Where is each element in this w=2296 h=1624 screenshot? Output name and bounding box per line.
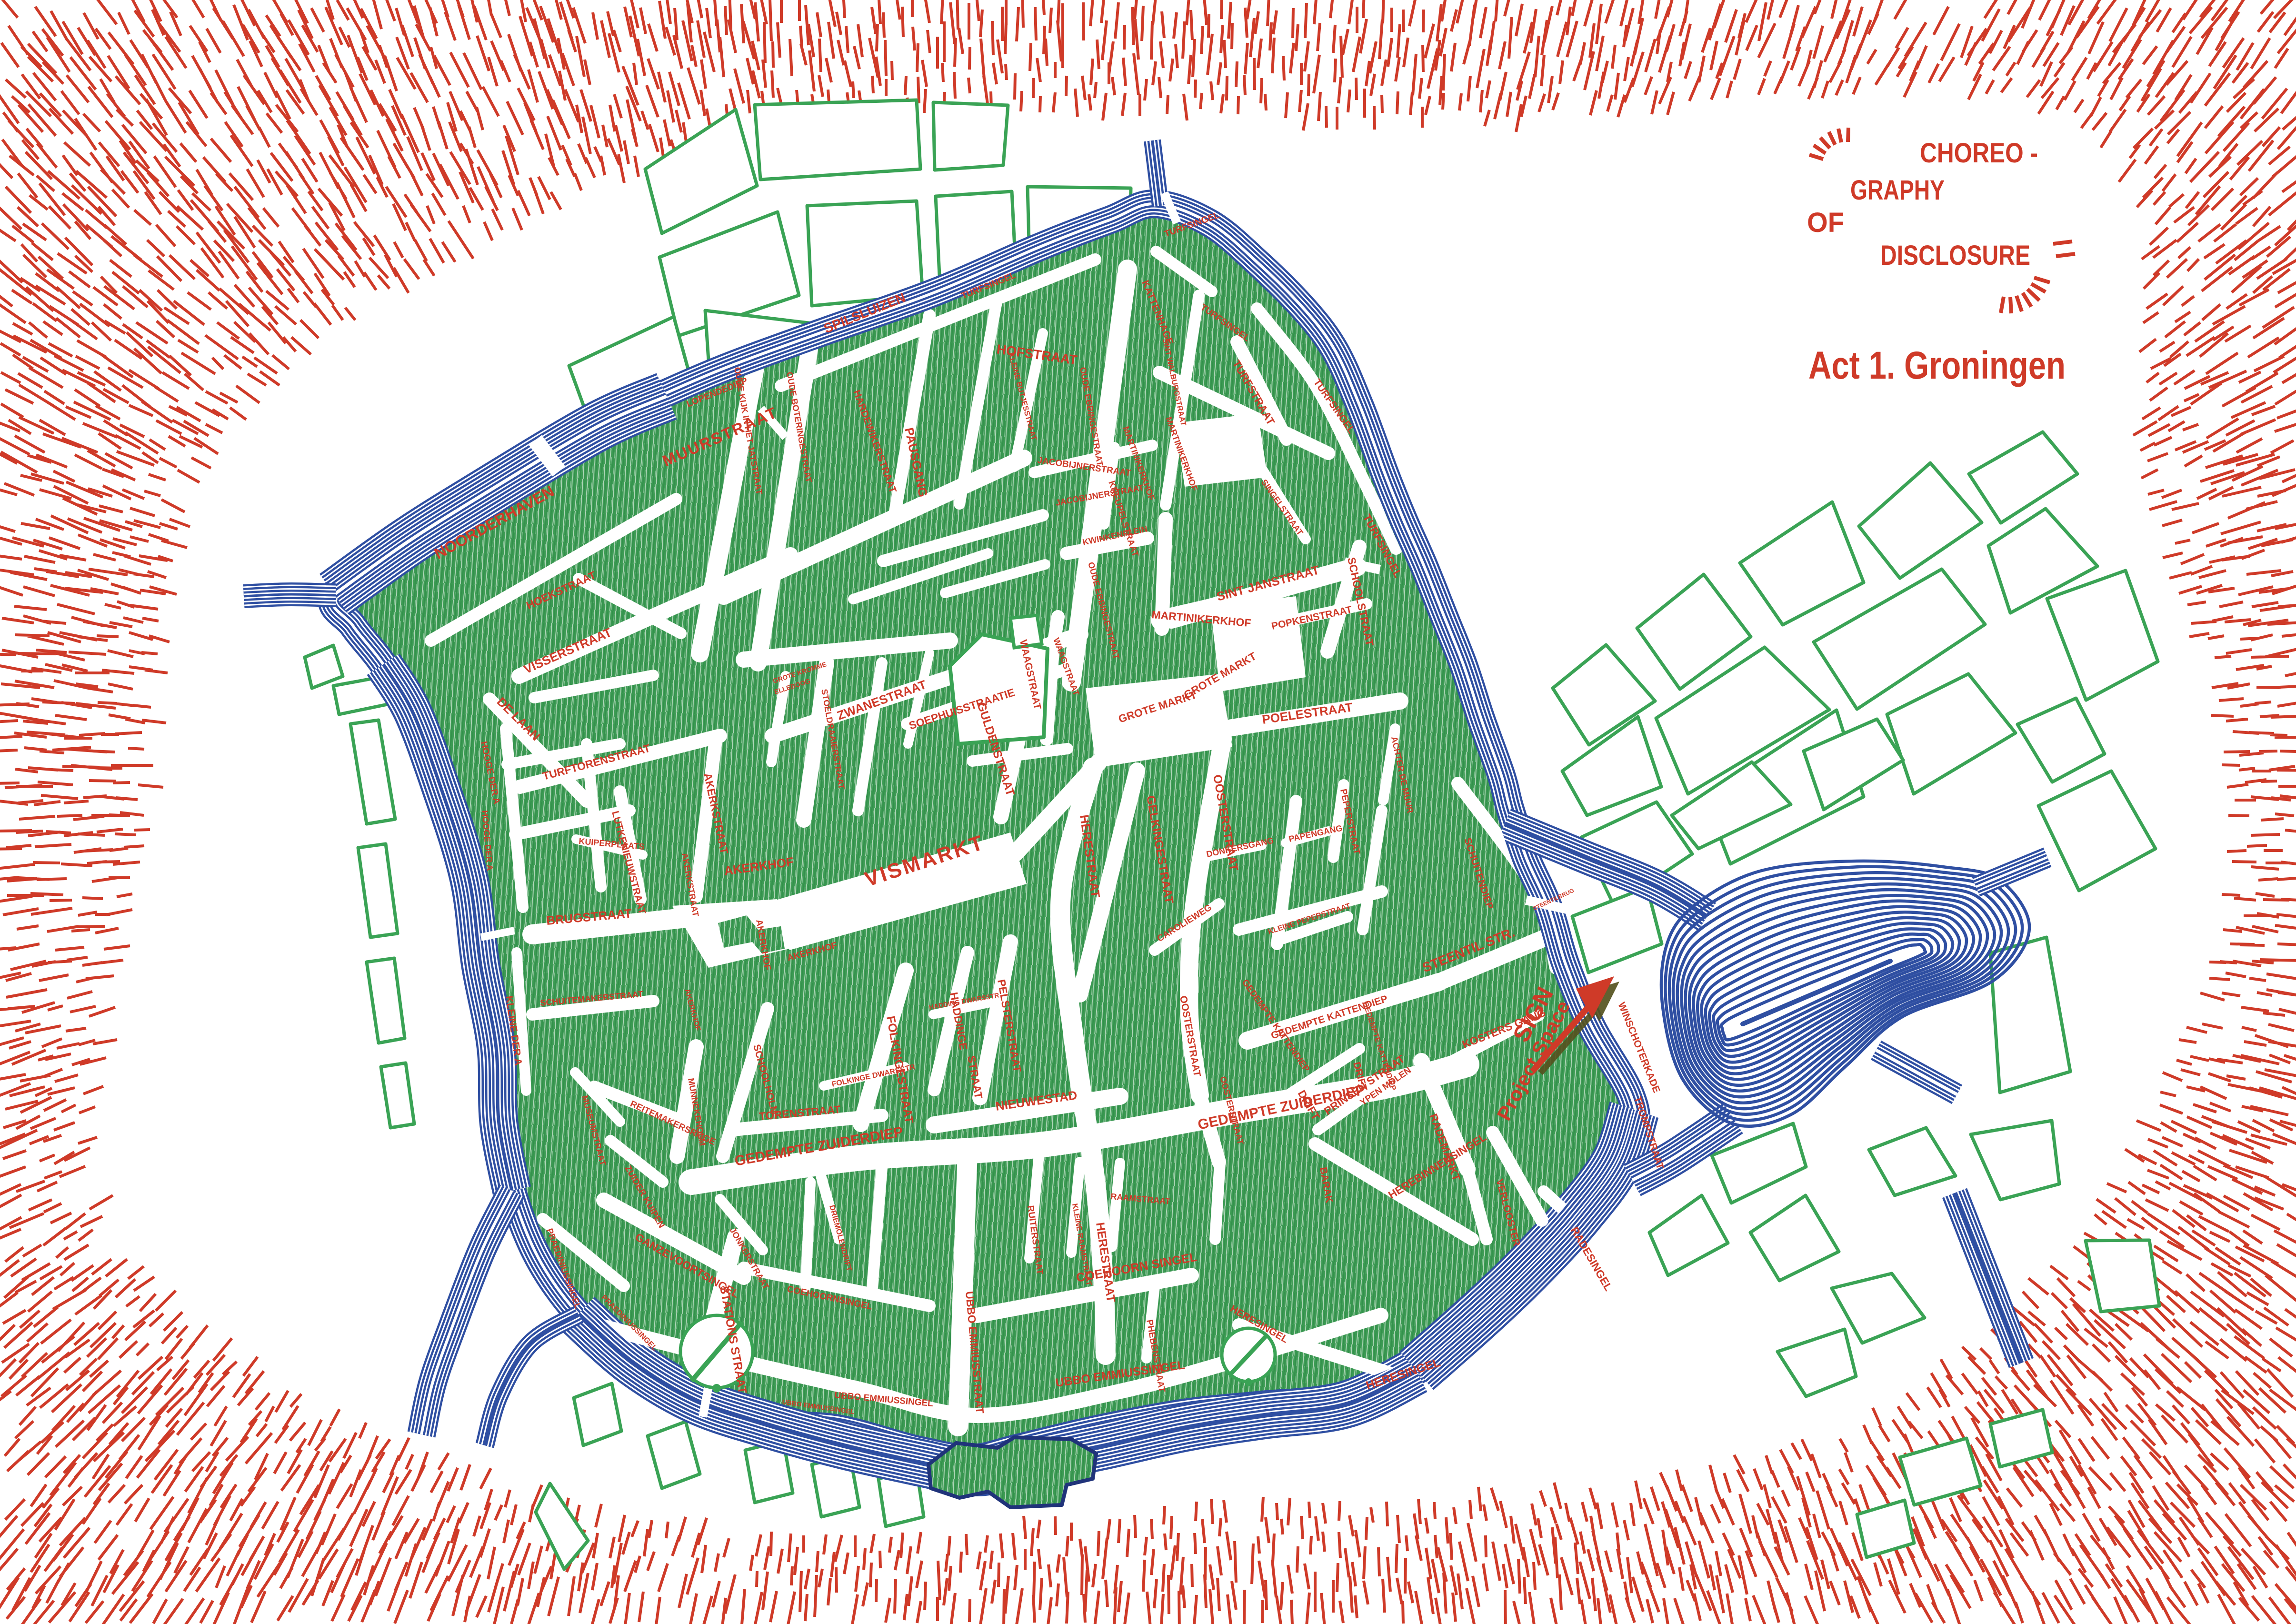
svg-text:DISCLOSURE: DISCLOSURE — [1880, 240, 2030, 271]
svg-text:OF: OF — [1807, 207, 1844, 238]
svg-text:CHOREO -: CHOREO - — [1920, 138, 2038, 169]
svg-text:GRAPHY: GRAPHY — [1850, 175, 1945, 206]
svg-text:Act 1. Groningen: Act 1. Groningen — [1808, 344, 2066, 387]
